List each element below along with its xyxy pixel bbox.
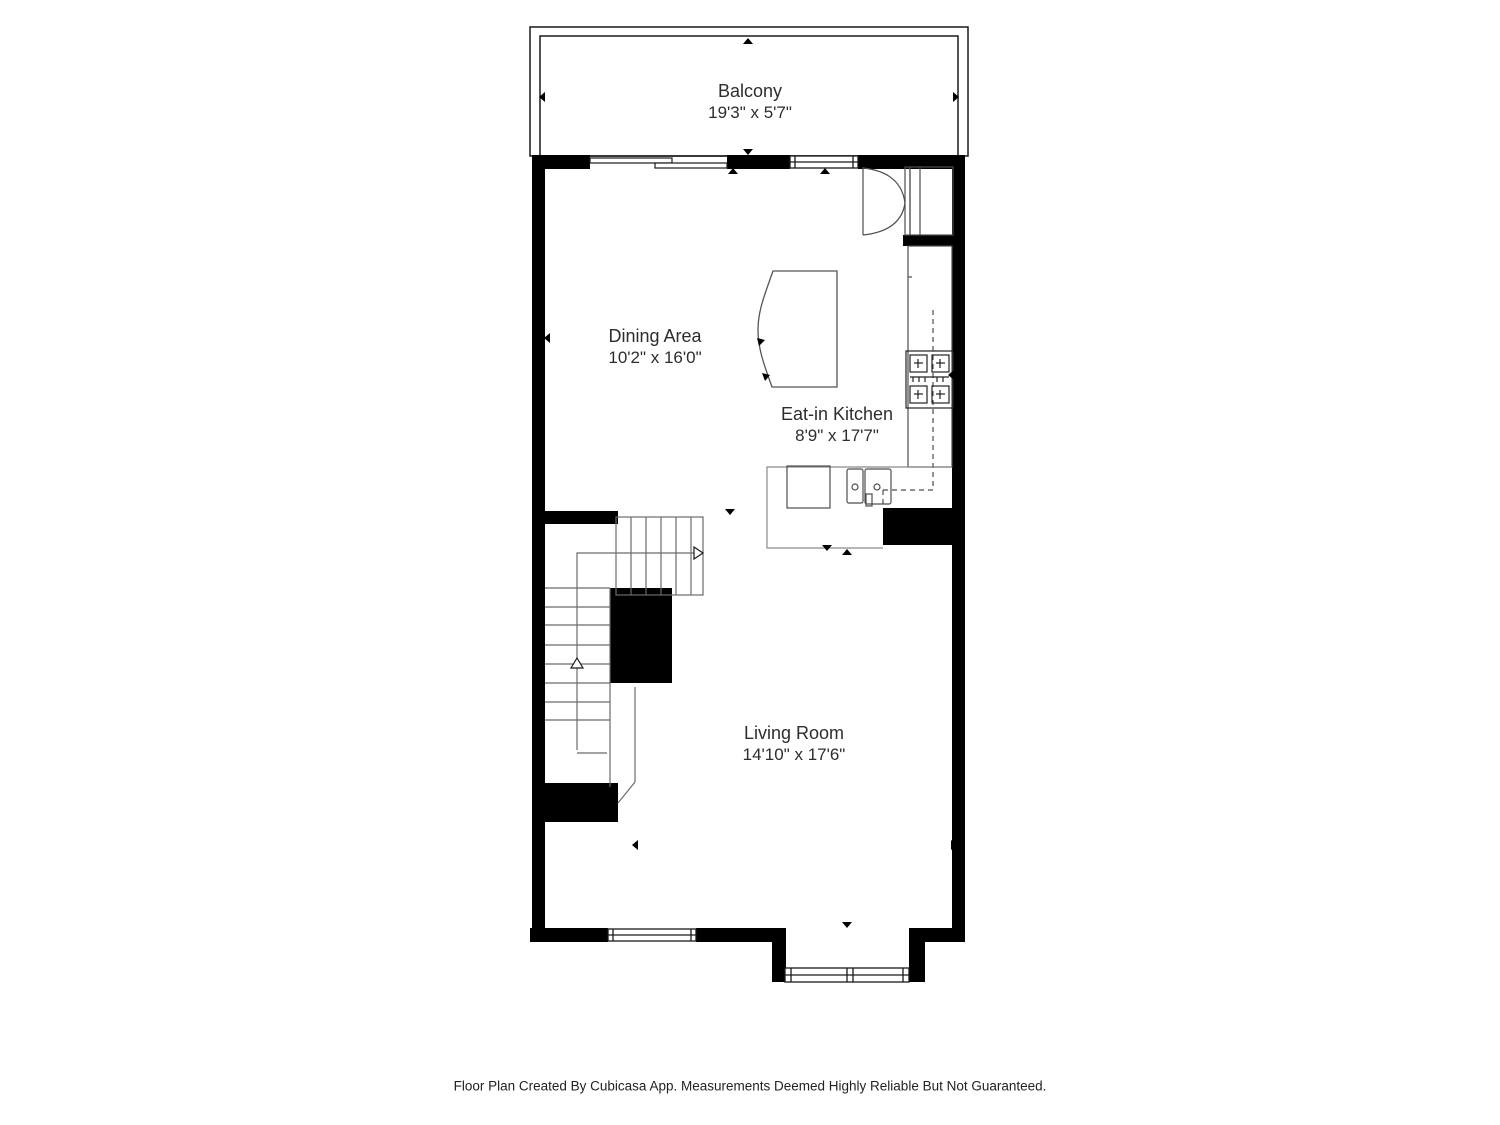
floorplan-drawing bbox=[0, 0, 1500, 1125]
dishwasher bbox=[787, 466, 830, 508]
stair-arrow-up-icon bbox=[571, 658, 583, 668]
kitchen-counter-right bbox=[908, 246, 952, 467]
arrow-down-icon bbox=[725, 509, 735, 515]
room-label-dining-area: Dining Area 10'2" x 16'0" bbox=[608, 325, 701, 369]
stair-arrow-right-icon bbox=[694, 547, 703, 559]
room-name: Eat-in Kitchen bbox=[781, 403, 893, 425]
window-top bbox=[790, 156, 858, 168]
room-name: Balcony bbox=[708, 80, 792, 102]
room-dimensions: 10'2" x 16'0" bbox=[608, 347, 701, 369]
arrow-down-icon bbox=[842, 922, 852, 928]
walls bbox=[530, 155, 965, 982]
window-bottom-left bbox=[608, 929, 696, 941]
windows bbox=[608, 156, 909, 982]
arrow-up-icon bbox=[820, 168, 830, 174]
room-label-living-room: Living Room 14'10" x 17'6" bbox=[743, 722, 846, 766]
stove bbox=[906, 351, 953, 408]
window-bay bbox=[785, 968, 909, 982]
arrow-up-icon bbox=[743, 38, 753, 44]
footer-disclaimer: Floor Plan Created By Cubicasa App. Meas… bbox=[454, 1079, 1047, 1094]
room-label-balcony: Balcony 19'3" x 5'7" bbox=[708, 80, 792, 124]
arrow-left-icon bbox=[632, 840, 638, 850]
kitchen-sink bbox=[847, 469, 891, 506]
double-door bbox=[863, 167, 905, 235]
room-dimensions: 19'3" x 5'7" bbox=[708, 102, 792, 124]
arrow-down-icon bbox=[743, 149, 753, 155]
room-label-eat-in-kitchen: Eat-in Kitchen 8'9" x 17'7" bbox=[781, 403, 893, 447]
arrow-up-icon bbox=[842, 549, 852, 555]
room-dimensions: 14'10" x 17'6" bbox=[743, 744, 846, 766]
room-name: Living Room bbox=[743, 722, 846, 744]
room-dimensions: 8'9" x 17'7" bbox=[781, 425, 893, 447]
refrigerator bbox=[905, 167, 953, 235]
floorplan-page: { "colors": { "wall": "#000000", "fixtur… bbox=[0, 0, 1500, 1125]
room-name: Dining Area bbox=[608, 325, 701, 347]
sliding-door bbox=[590, 158, 727, 168]
dining-table bbox=[757, 271, 837, 387]
